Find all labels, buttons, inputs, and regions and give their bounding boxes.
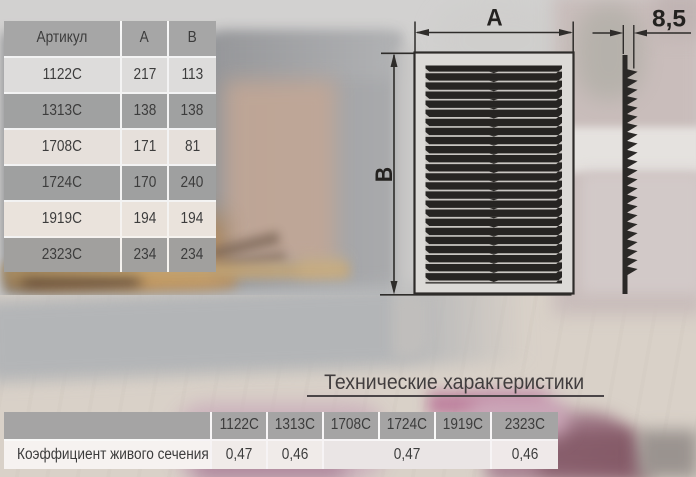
svg-text:A: A: [486, 3, 502, 30]
svg-text:8,5: 8,5: [652, 5, 686, 32]
svg-text:B: B: [371, 167, 398, 182]
